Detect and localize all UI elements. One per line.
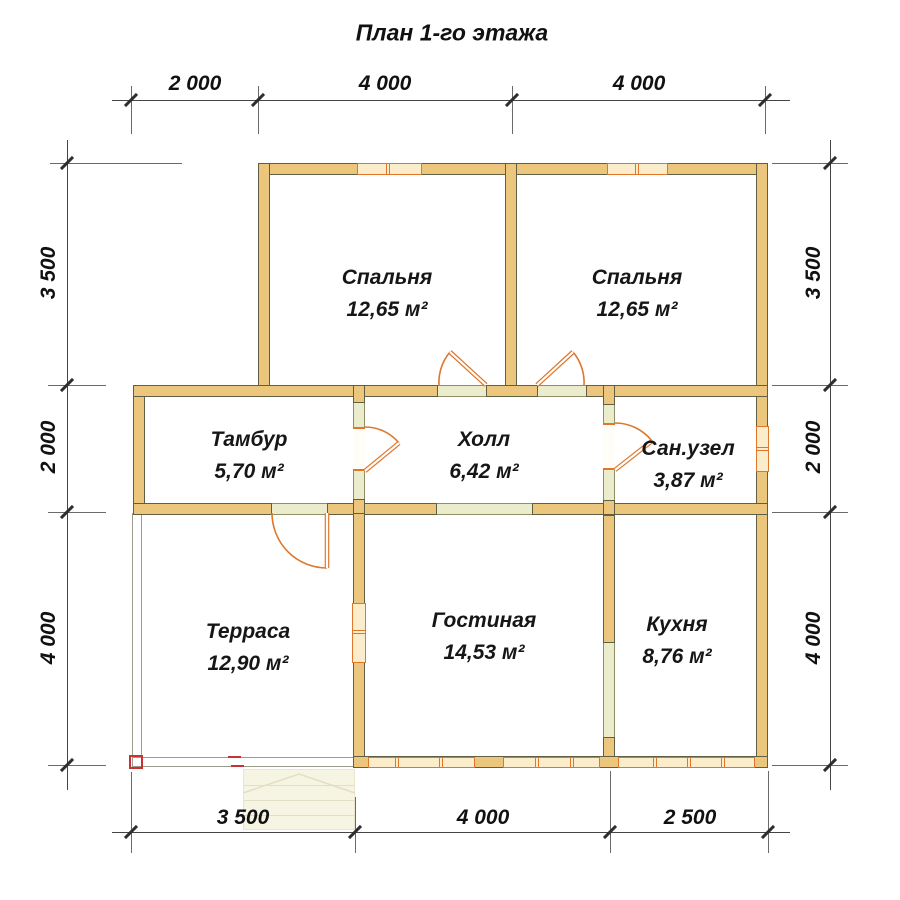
- extension-line: [512, 86, 513, 134]
- extension-line: [772, 163, 848, 164]
- dim-top-3: 4 000: [613, 72, 666, 96]
- extension-line: [765, 86, 766, 134]
- room-name: Тамбур: [210, 424, 287, 456]
- room-area: 14,53 м²: [432, 637, 537, 669]
- extension-line: [772, 512, 848, 513]
- extension-line: [258, 86, 259, 134]
- dim-top-2: 4 000: [359, 72, 412, 96]
- extension-line: [355, 797, 356, 853]
- door-arc-tambour-hall: [365, 427, 399, 443]
- stairs-direction-mark: [243, 774, 355, 793]
- door-arc-bedroom-left: [439, 352, 450, 385]
- room-label-living-room: Гостиная 14,53 м²: [432, 605, 537, 669]
- room-label-bedroom-left: Спальня 12,65 м²: [342, 262, 433, 326]
- room-label-kitchen: Кухня 8,76 м²: [642, 609, 711, 673]
- room-name: Терраса: [206, 616, 290, 648]
- room-area: 8,76 м²: [642, 641, 711, 673]
- room-name: Холл: [449, 424, 518, 456]
- room-area: 12,65 м²: [592, 294, 683, 326]
- room-label-bathroom: Сан.узел 3,87 м²: [641, 433, 734, 497]
- extension-line: [772, 385, 848, 386]
- dimension-line-left: [67, 140, 68, 790]
- room-name: Кухня: [642, 609, 711, 641]
- door-arc-tambour-terrace: [272, 513, 327, 568]
- dimension-line-right: [830, 140, 831, 790]
- dim-bottom-3: 2 500: [664, 806, 717, 830]
- room-label-tambour: Тамбур 5,70 м²: [210, 424, 287, 488]
- dim-left-3: 4 000: [37, 612, 61, 665]
- dimension-line-top: [112, 100, 790, 101]
- extension-line: [48, 385, 106, 386]
- dim-left-2: 2 000: [37, 421, 61, 474]
- extension-line: [131, 772, 132, 853]
- door-leaf-inner: [365, 443, 399, 471]
- extension-line: [50, 163, 182, 164]
- room-area: 3,87 м²: [641, 465, 734, 497]
- dim-left-1: 3 500: [37, 247, 61, 300]
- dimension-line-bottom: [112, 832, 790, 833]
- dim-bottom-1: 3 500: [217, 806, 270, 830]
- room-label-bedroom-right: Спальня 12,65 м²: [592, 262, 683, 326]
- door-arc-bedroom-right: [573, 352, 584, 385]
- room-label-hall: Холл 6,42 м²: [449, 424, 518, 488]
- room-name: Гостиная: [432, 605, 537, 637]
- room-label-terrace: Терраса 12,90 м²: [206, 616, 290, 680]
- dim-right-3: 4 000: [802, 612, 826, 665]
- extension-line: [131, 86, 132, 134]
- dim-top-1: 2 000: [169, 72, 222, 96]
- room-name: Сан.узел: [641, 433, 734, 465]
- dim-right-1: 3 500: [802, 247, 826, 300]
- extension-line: [772, 765, 848, 766]
- door-leaf-inner: [537, 352, 573, 385]
- extension-line: [48, 512, 106, 513]
- room-area: 6,42 м²: [449, 456, 518, 488]
- room-area: 5,70 м²: [210, 456, 287, 488]
- extension-line: [48, 765, 106, 766]
- room-name: Спальня: [592, 262, 683, 294]
- door-leaf-inner: [450, 352, 486, 385]
- extension-line: [768, 771, 769, 853]
- room-area: 12,65 м²: [342, 294, 433, 326]
- floor-plan-canvas: План 1-го этажа: [0, 0, 900, 900]
- room-area: 12,90 м²: [206, 648, 290, 680]
- dim-bottom-2: 4 000: [457, 806, 510, 830]
- extension-line: [610, 771, 611, 853]
- dim-right-2: 2 000: [802, 421, 826, 474]
- room-name: Спальня: [342, 262, 433, 294]
